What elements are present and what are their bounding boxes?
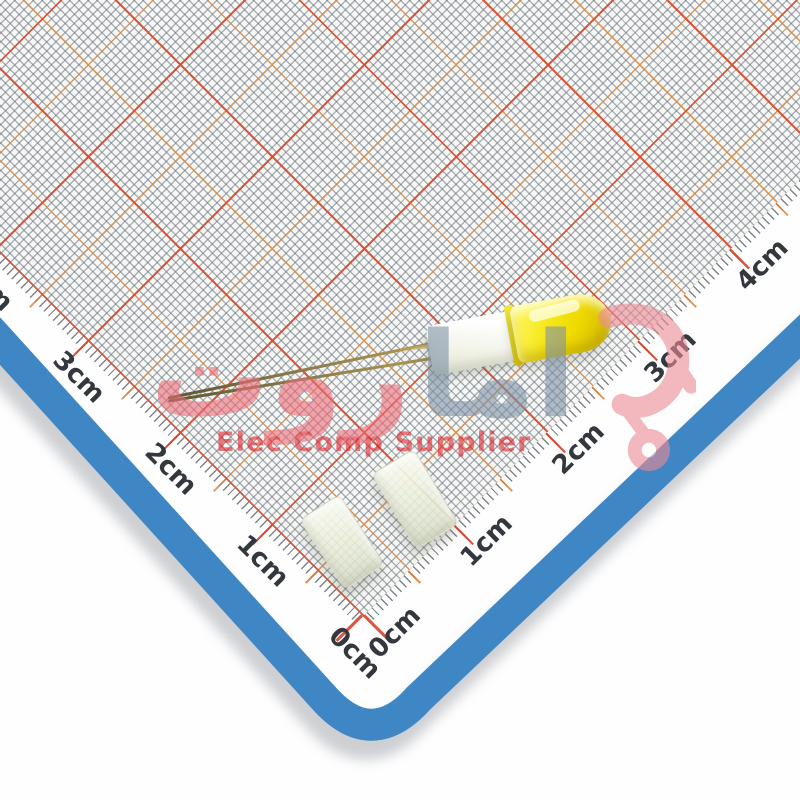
watermark-arabic-pink: روت: [150, 308, 410, 444]
cart-logo-icon: [584, 302, 696, 480]
watermark-arabic-gray: اما: [418, 308, 576, 444]
product-photo: 0cm 1cm 2cm 3cm 4cm 0cm 1cm 2cm 3cm 4cm: [0, 0, 800, 800]
watermark: اما روت Elec Comp Supplier: [0, 0, 800, 800]
watermark-tagline: Elec Comp Supplier: [216, 429, 532, 456]
